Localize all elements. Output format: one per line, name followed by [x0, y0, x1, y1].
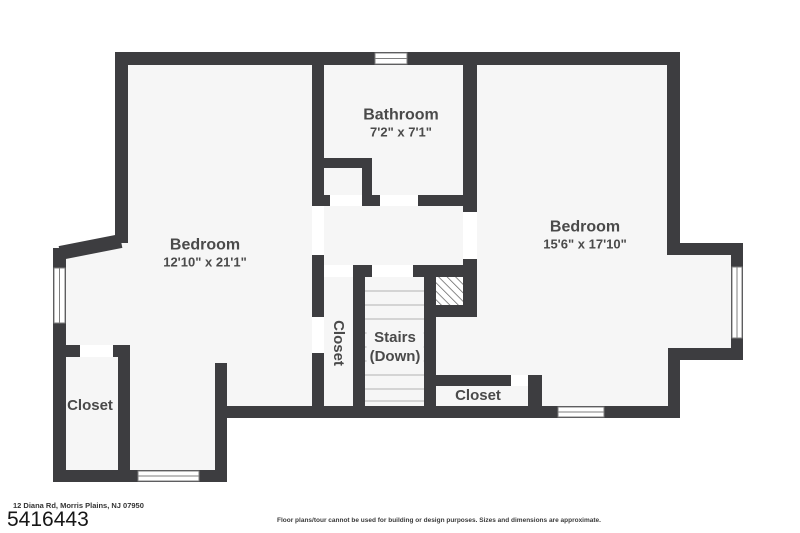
door-opening-bathroom	[380, 195, 418, 206]
door-opening-center-closet-side	[312, 317, 324, 353]
wall-bottom-main	[215, 406, 680, 418]
wall-right-upper	[667, 52, 680, 255]
stairs-name: Stairs	[370, 328, 421, 347]
wall-stairs-right	[424, 265, 436, 418]
window-bathroom-top	[375, 53, 407, 64]
window-bump-right	[732, 267, 742, 338]
closet-center-label: Closet	[329, 320, 347, 366]
wall-closet-left-right	[118, 345, 130, 482]
door-opening-left-closet	[80, 345, 113, 357]
closet-right-label: Closet	[455, 387, 501, 405]
disclaimer-text: Floor plans/tour cannot be used for buil…	[277, 517, 601, 524]
bedroom-right-name: Bedroom	[543, 218, 627, 237]
stairs-label: Stairs (Down)	[367, 327, 424, 367]
door-opening-right-bedroom	[463, 212, 477, 259]
bedroom-left-label: Bedroom 12'10" x 21'1"	[163, 236, 247, 271]
closet-left-label: Closet	[67, 397, 113, 415]
bedroom-left-name: Bedroom	[163, 236, 247, 255]
bedroom-right-label: Bedroom 15'6" x 17'10"	[543, 218, 627, 253]
wall-alcove-stub	[215, 363, 227, 482]
floor-plan-drawing	[0, 0, 800, 533]
bathroom-dims: 7'2" x 7'1"	[363, 125, 439, 141]
wall-closet-right-side	[528, 375, 542, 418]
wall-closet-right-top	[424, 375, 511, 386]
window-alcove-bottom	[138, 471, 199, 481]
hatch-area	[436, 277, 463, 305]
bedroom-right-dims: 15'6" x 17'10"	[543, 237, 627, 253]
bathroom-name: Bathroom	[363, 106, 439, 125]
door-opening-stairs	[372, 265, 413, 277]
floor-plan-page: Bathroom 7'2" x 7'1" Bedroom 12'10" x 21…	[0, 0, 800, 533]
window-left-bedroom	[54, 268, 65, 323]
wall-left-upper	[115, 52, 128, 243]
bathroom-label: Bathroom 7'2" x 7'1"	[363, 106, 439, 141]
bedroom-left-dims: 12'10" x 21'1"	[163, 255, 247, 271]
wall-hall-right-upper	[463, 52, 477, 212]
wall-stairs-left	[353, 265, 365, 418]
wall-hatch-bottom	[424, 305, 477, 317]
window-right-bedroom-bottom	[558, 407, 604, 417]
wall-bathroom-left	[312, 52, 324, 206]
stairs-direction: (Down)	[370, 347, 421, 366]
mls-number: 5416443	[7, 508, 89, 532]
door-opening-left-bedroom	[312, 206, 324, 255]
door-opening-right-closet	[511, 375, 528, 386]
wall-right-lower	[668, 352, 680, 418]
door-opening-center-closet-top	[324, 265, 353, 277]
door-opening-bath-nook	[330, 195, 362, 206]
